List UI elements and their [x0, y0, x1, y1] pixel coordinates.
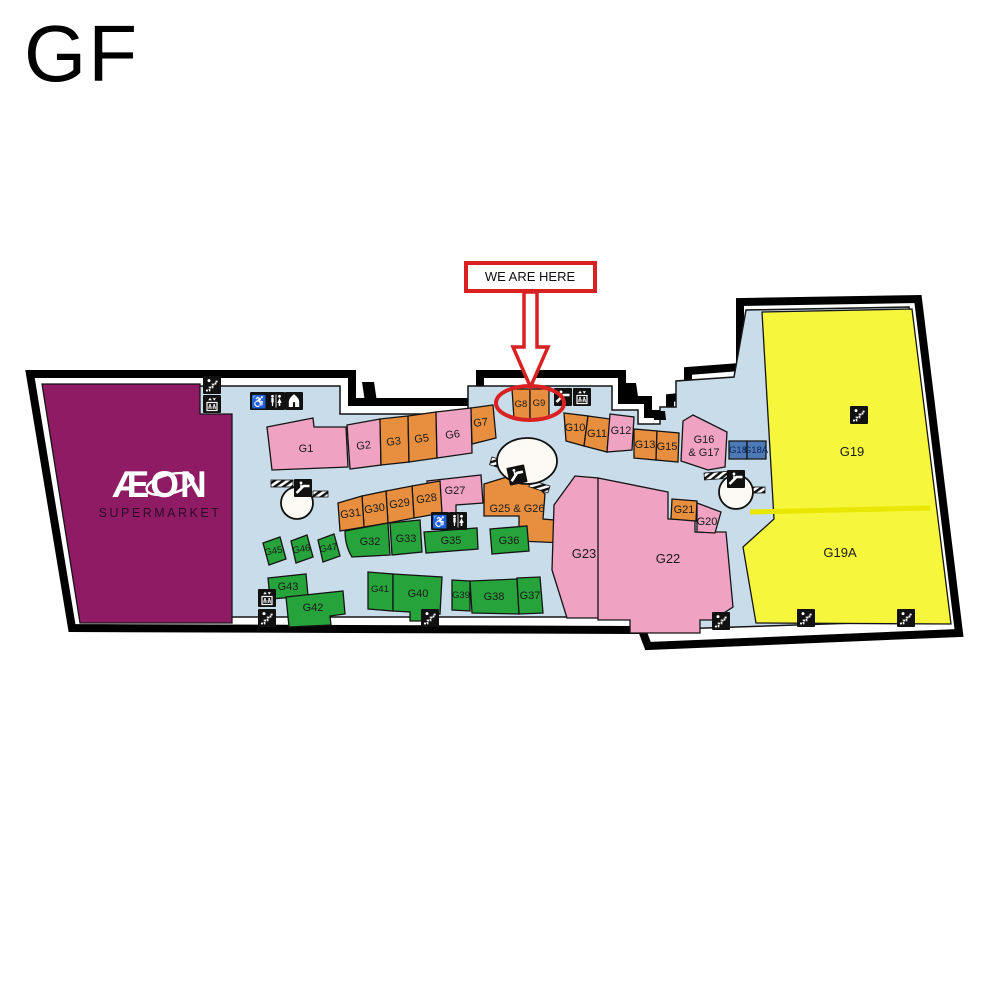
- queue-hatch: [313, 491, 328, 497]
- unit-label: G18A: [744, 445, 769, 456]
- unit-label: G35: [441, 535, 462, 547]
- unit-label: G16: [694, 434, 715, 446]
- toilets-icon: [449, 512, 467, 530]
- unit-g6[interactable]: G6: [436, 408, 472, 458]
- unit-label: G42: [303, 602, 324, 614]
- unit-label: G20: [697, 516, 718, 528]
- unit-label: G40: [408, 588, 429, 600]
- unit-label: G23: [572, 546, 597, 561]
- unit-label: G9: [533, 398, 546, 409]
- queue-hatch: [271, 480, 293, 487]
- unit-label: G5: [414, 432, 430, 446]
- escalator-icon: [294, 479, 312, 497]
- unit-label: G1: [299, 443, 314, 455]
- unit-g2[interactable]: G2: [347, 419, 381, 469]
- unit-g33[interactable]: G33: [390, 520, 422, 555]
- unit-label: G37: [520, 590, 541, 602]
- unit-label: G21: [674, 504, 695, 516]
- unit-g15[interactable]: G15: [656, 431, 679, 462]
- unit-g31[interactable]: G31: [338, 496, 364, 531]
- unit-g35[interactable]: G35: [424, 528, 478, 553]
- lift-icon: [258, 589, 276, 607]
- wheelchair-access-icon: [250, 392, 268, 410]
- unit-g5[interactable]: G5: [408, 412, 437, 462]
- escalator-icon: [727, 470, 745, 488]
- unit-label: G2: [356, 439, 372, 453]
- stairs-icon: [203, 376, 221, 394]
- unit-label: G38: [484, 591, 505, 603]
- stairs-icon: [712, 612, 730, 630]
- unit-label: G12: [611, 425, 632, 437]
- unit-label: G22: [656, 551, 681, 566]
- unit-label: G39: [452, 590, 470, 601]
- unit-label: G19: [840, 444, 865, 459]
- stairs-icon: [850, 406, 868, 424]
- unit-g9[interactable]: G9: [530, 389, 549, 419]
- unit-g29[interactable]: G29: [386, 486, 414, 523]
- mall-floor-map: ♿ G19 G19A ÆON SU: [0, 0, 1001, 1001]
- unit-label: G3: [386, 435, 402, 449]
- lift-icon: [573, 388, 591, 406]
- unit-label: G25 & G26: [489, 503, 544, 515]
- unit-label: G36: [499, 535, 520, 547]
- unit-g39[interactable]: G39: [452, 580, 470, 611]
- unit-g7[interactable]: G7: [471, 405, 496, 444]
- unit-label: G19A: [823, 545, 857, 560]
- unit-label: G32: [360, 536, 381, 548]
- aeon-logo: ÆON: [112, 464, 208, 505]
- escalator-icon: [506, 464, 527, 485]
- unit-g37[interactable]: G37: [517, 577, 543, 614]
- wheelchair-access-icon: [431, 512, 449, 530]
- unit-label: G43: [278, 581, 299, 593]
- stairs-icon: [258, 609, 276, 627]
- unit-g21[interactable]: G21: [671, 499, 697, 521]
- unit-g41[interactable]: G41: [368, 572, 393, 611]
- stairs-icon: [797, 609, 815, 627]
- unit-g13[interactable]: G13: [634, 429, 657, 460]
- unit-g36[interactable]: G36: [490, 526, 529, 554]
- unit-g38[interactable]: G38: [470, 579, 519, 614]
- unit-label: & G17: [688, 447, 719, 459]
- unit-g12[interactable]: G12: [607, 414, 634, 452]
- unit-label: G15: [657, 441, 678, 453]
- lift-icon: [203, 395, 221, 413]
- unit-label: G8: [515, 399, 528, 410]
- unit-label: G27: [445, 485, 466, 497]
- toilets-icon: [267, 392, 285, 410]
- unit-label: G10: [565, 422, 586, 434]
- unit-label: G33: [396, 533, 417, 545]
- unit-label: G11: [587, 428, 607, 440]
- unit-label: G7: [473, 416, 489, 430]
- unit-g3[interactable]: G3: [380, 416, 409, 465]
- unit-label: G41: [371, 584, 389, 595]
- stairs-icon: [421, 609, 439, 627]
- unit-g8[interactable]: G8: [512, 389, 530, 419]
- unit-g18a[interactable]: G18A: [744, 441, 769, 459]
- unit-g30[interactable]: G30: [362, 491, 388, 527]
- stairs-icon: [897, 609, 915, 627]
- unit-g11[interactable]: G11: [584, 416, 610, 452]
- here-label: WE ARE HERE: [485, 269, 576, 284]
- aeon-subtitle: SUPERMARKET: [99, 506, 222, 520]
- unit-label: G13: [635, 439, 656, 451]
- prayer-room-icon: [285, 392, 303, 410]
- unit-label: G6: [445, 428, 461, 442]
